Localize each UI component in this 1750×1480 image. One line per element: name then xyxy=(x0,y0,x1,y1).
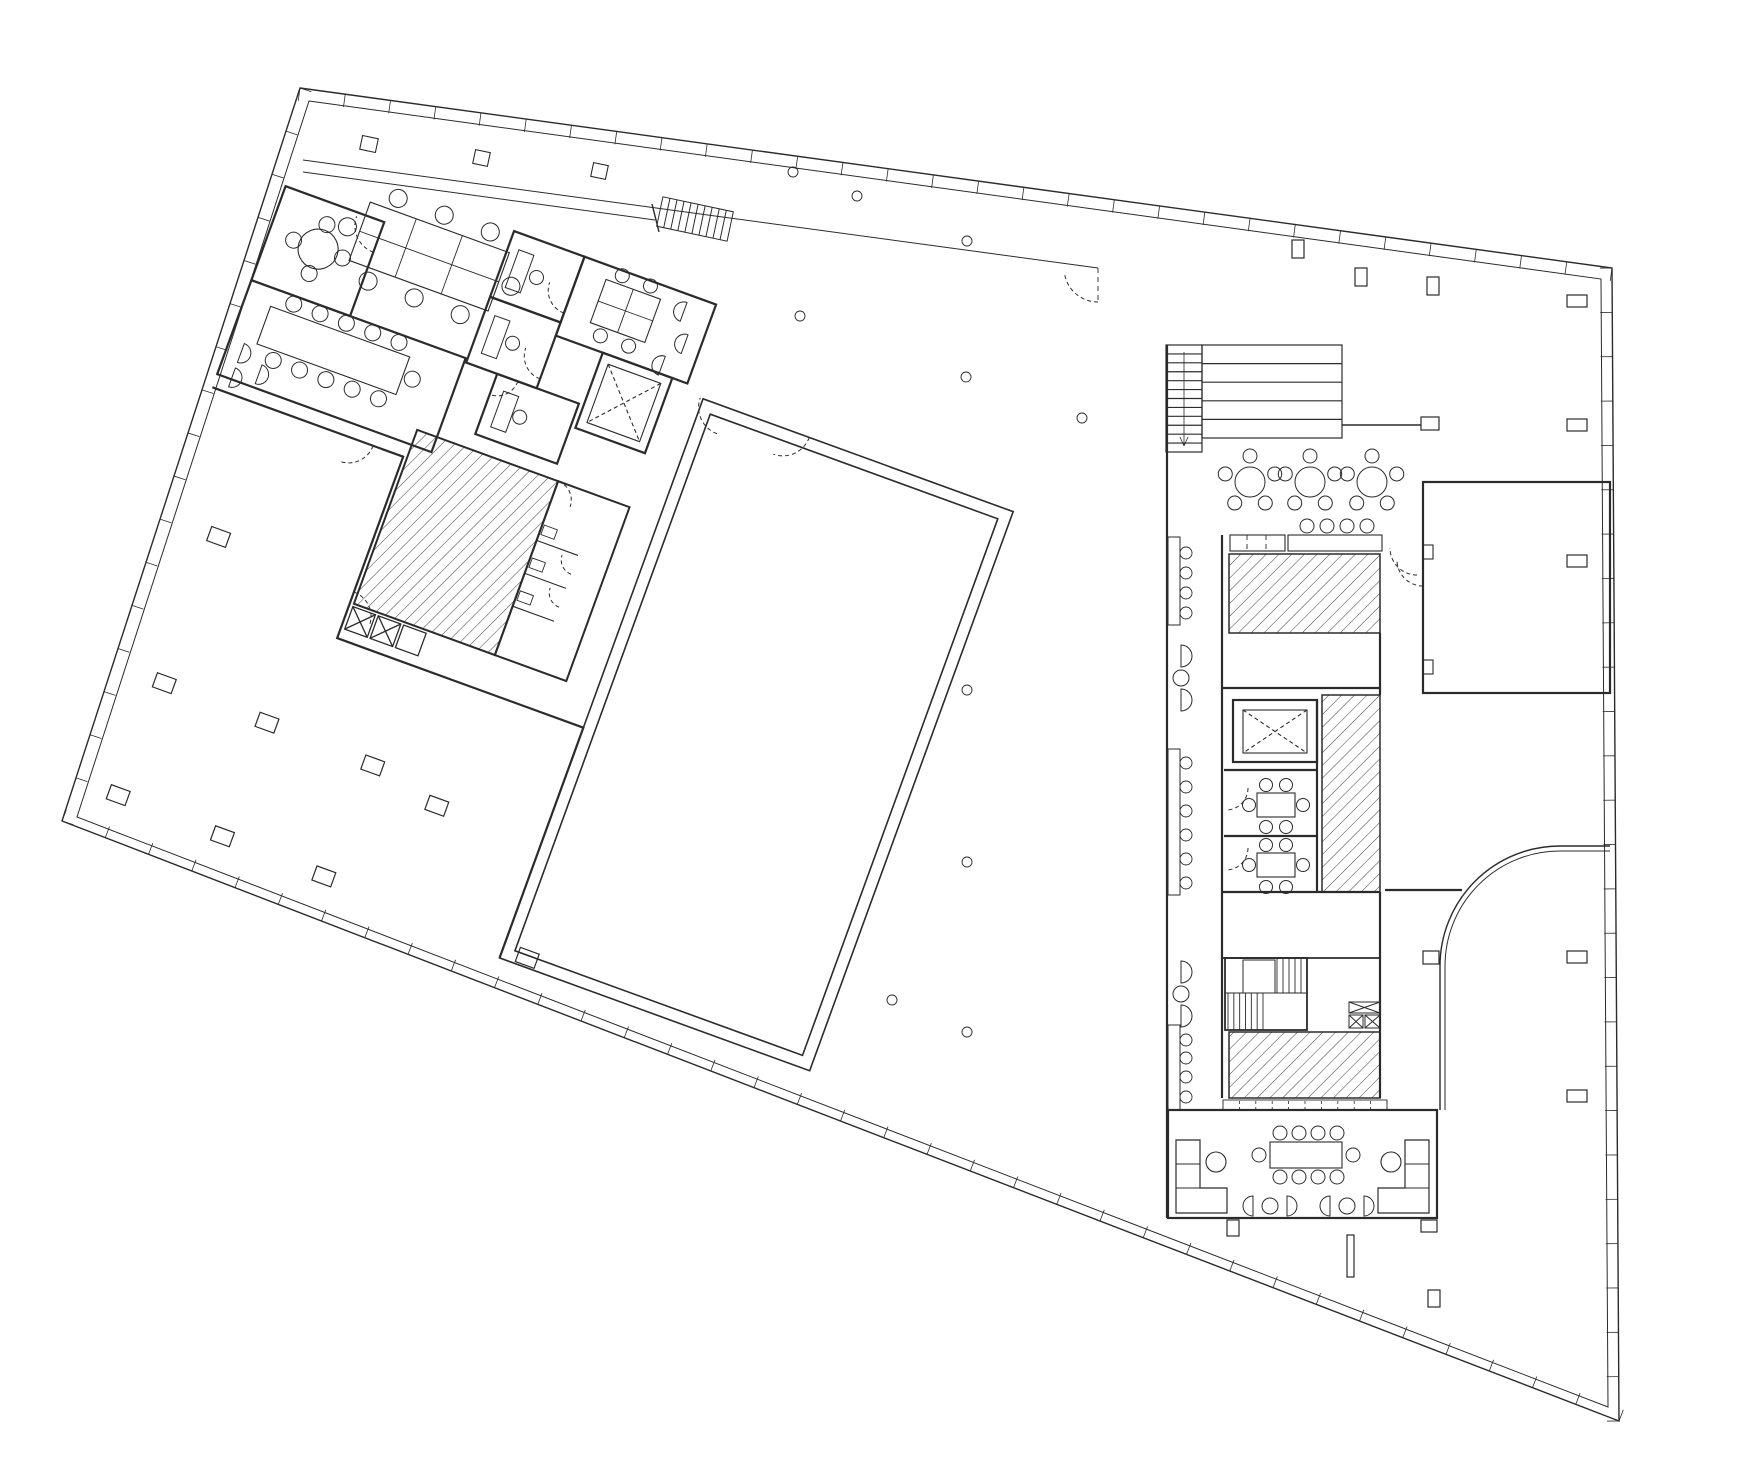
hatched-service-room xyxy=(1229,1032,1380,1098)
hatched-service-room xyxy=(1322,695,1380,892)
floor-plan-svg xyxy=(0,0,1750,1480)
floor-plan-canvas xyxy=(0,0,1750,1480)
floor-plan xyxy=(0,0,1750,1480)
hatched-service-room xyxy=(1229,554,1380,633)
